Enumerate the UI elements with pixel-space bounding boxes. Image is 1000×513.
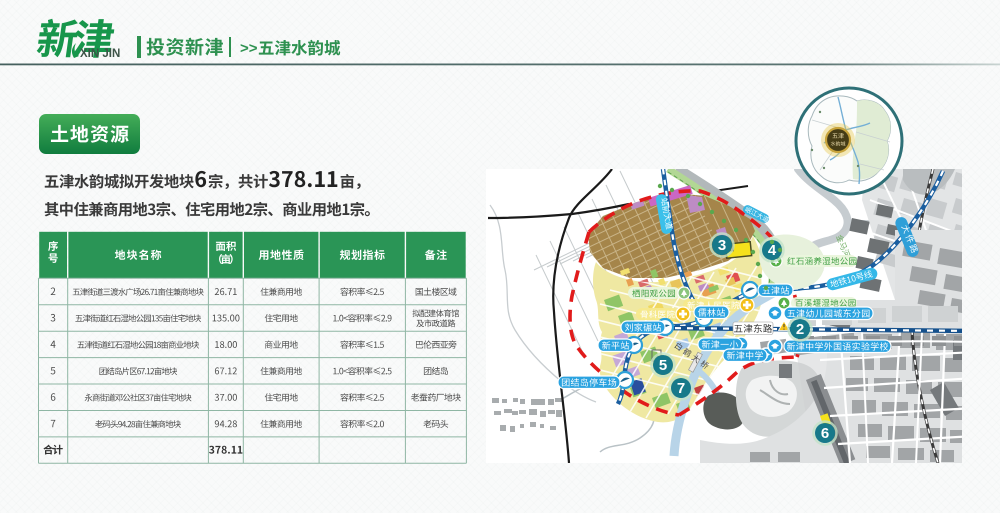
- svg-text:2: 2: [796, 321, 804, 338]
- svg-text:4: 4: [768, 242, 777, 259]
- svg-text:7: 7: [677, 380, 685, 397]
- svg-text:>>: >>: [240, 40, 258, 57]
- svg-text:6: 6: [821, 425, 829, 442]
- svg-text:3: 3: [718, 237, 726, 254]
- svg-text:5: 5: [659, 357, 667, 374]
- svg-text:XIN JIN: XIN JIN: [80, 48, 120, 60]
